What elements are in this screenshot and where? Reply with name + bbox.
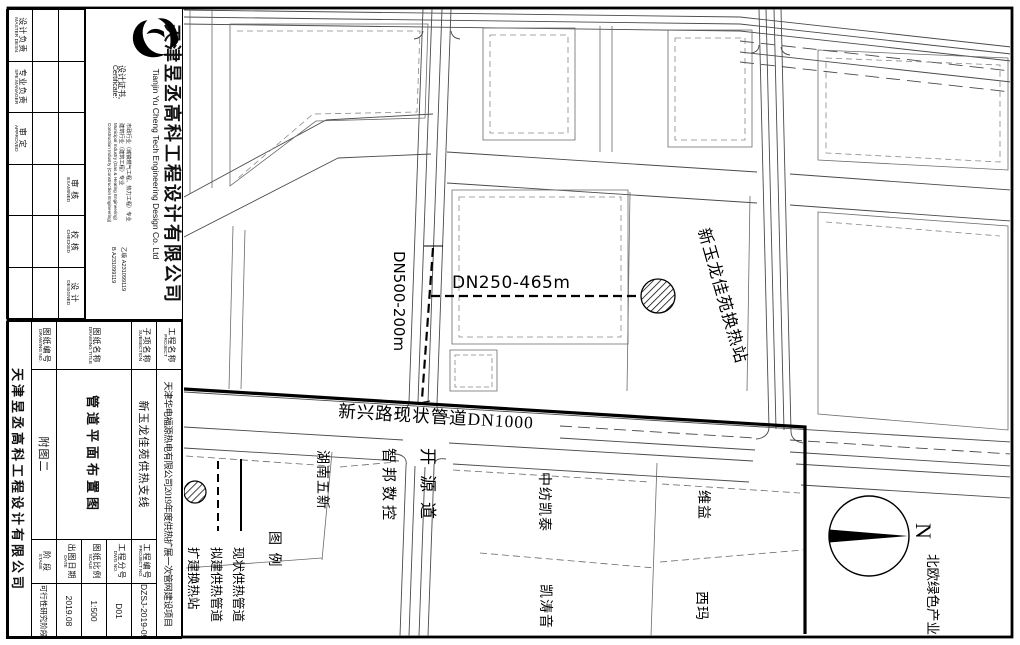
signature-table: 审 核EXAMINED 校 核CHECKED 设 计DESIGNED 设计负责M… [6, 9, 85, 319]
approved-cell: 审 定APPROVED [7, 113, 33, 165]
company-logo-icon [93, 11, 145, 63]
project-name-value: 天津华电福源热电有限公司2019年度供热扩展一次管网建设项目 [157, 370, 182, 639]
planned-pipeline-dn500 [422, 248, 433, 399]
parcel-label: 北欧绿色产业 [925, 554, 941, 635]
date-label: 出图日期DATE [57, 540, 82, 584]
stage-value: 可行性研究阶段 [32, 584, 57, 639]
parcel-label: 中纺凯泰 [536, 472, 552, 532]
company-certificate-panel: 天津昱丞高科工程设计有限公司 Tianjin Yu Cheng Tech Eng… [85, 9, 182, 319]
legend-title: 图 例 [266, 531, 282, 569]
parcel-label: 凯涛音 [537, 584, 554, 629]
certificate-lines: 市政行业（城镇燃气工程、热力工程）专业 建筑行业（建筑工程）专业 Municip… [106, 123, 131, 247]
parcel-label: 湖南五新 [314, 450, 330, 510]
certificate-grades: 乙级 A231099119 B A231099119 [109, 247, 129, 317]
pipelines [184, 246, 805, 634]
scale-value: 1:500 [82, 584, 107, 639]
branch-pipe-label: DN250-465m [452, 273, 570, 293]
project-name-label: 工程名称PROJECT [157, 322, 182, 370]
legend-planned-label: 拟建供热管道 [209, 547, 224, 623]
title-block-company: 天津昱丞高科工程设计有限公司 Tianjin Yu Cheng Tech Eng… [8, 8, 183, 320]
subsection-value: 新玉龙佳苑供热支线 [132, 370, 157, 540]
drawing-sheet: 新兴路现状管道DN1000 DN250-465m DN500-200m 新玉龙佳… [0, 0, 1020, 645]
road-network [184, 9, 1011, 636]
riser-pipe-label: DN500-200m [390, 251, 408, 351]
stage-label: 阶 段STAGE [32, 540, 57, 584]
designed-cell: 设 计DESIGNED [59, 267, 85, 319]
certificate-label: 设计证书, Certificate: [111, 63, 126, 123]
date-value: 2019.08 [57, 584, 82, 639]
dwg-no-value: D01 [107, 584, 132, 639]
checked-cell: 校 核CHECKED [59, 216, 85, 268]
legend-station-symbol [184, 481, 206, 503]
parcel-boundaries [186, 9, 1008, 636]
spe-manager-cell: 专业负责SPE.MANAGER [7, 61, 33, 113]
north-arrow-needle [829, 530, 908, 543]
north-label: N [911, 523, 936, 539]
legend-existing-label: 现状供热管道 [231, 547, 246, 623]
examined-cell: 审 核EXAMINED [59, 164, 85, 216]
heat-station-symbol [641, 279, 675, 313]
master-design-cell: 设计负责MASTER DESN. [7, 10, 33, 62]
parcel-label: 智邦数控 [380, 448, 398, 524]
legend [184, 459, 241, 531]
scale-label: 图纸比例SCALE [82, 540, 107, 584]
drawing-title-label: 图纸名称DRAWING TITLE [57, 322, 132, 370]
subsection-label: 子项名称SUBSECTION [132, 322, 157, 370]
legend-station-label: 扩建换热站 [186, 547, 200, 610]
drawing-title-value: 管道平面布置图 [57, 370, 132, 540]
project-no-value: DZSJ-2019-094 [132, 584, 157, 639]
station-label: 新玉龙佳苑换热站 [694, 226, 751, 366]
drawing-no-value: 附图二 [32, 370, 57, 540]
project-no-label: 工程编号PROJECT NO. [132, 540, 157, 584]
north-arrow [829, 496, 909, 576]
parcel-label: 维益 [695, 490, 711, 520]
company-name-cell: 天津昱丞高科工程设计有限公司 [7, 322, 32, 639]
parcel-label: 西玛 [693, 591, 709, 621]
road-name-label: 开源道 [418, 448, 437, 529]
map-labels: 新兴路现状管道DN1000 DN250-465m DN500-200m 新玉龙佳… [186, 226, 941, 635]
title-block-project: 工程名称PROJECT 天津华电福源热电有限公司2019年度供热扩展一次管网建设… [8, 320, 183, 637]
drawing-no-label: 图纸编号DRAWING NO. [32, 322, 57, 370]
dwg-no-label: 工程分号DWG NO. [107, 540, 132, 584]
